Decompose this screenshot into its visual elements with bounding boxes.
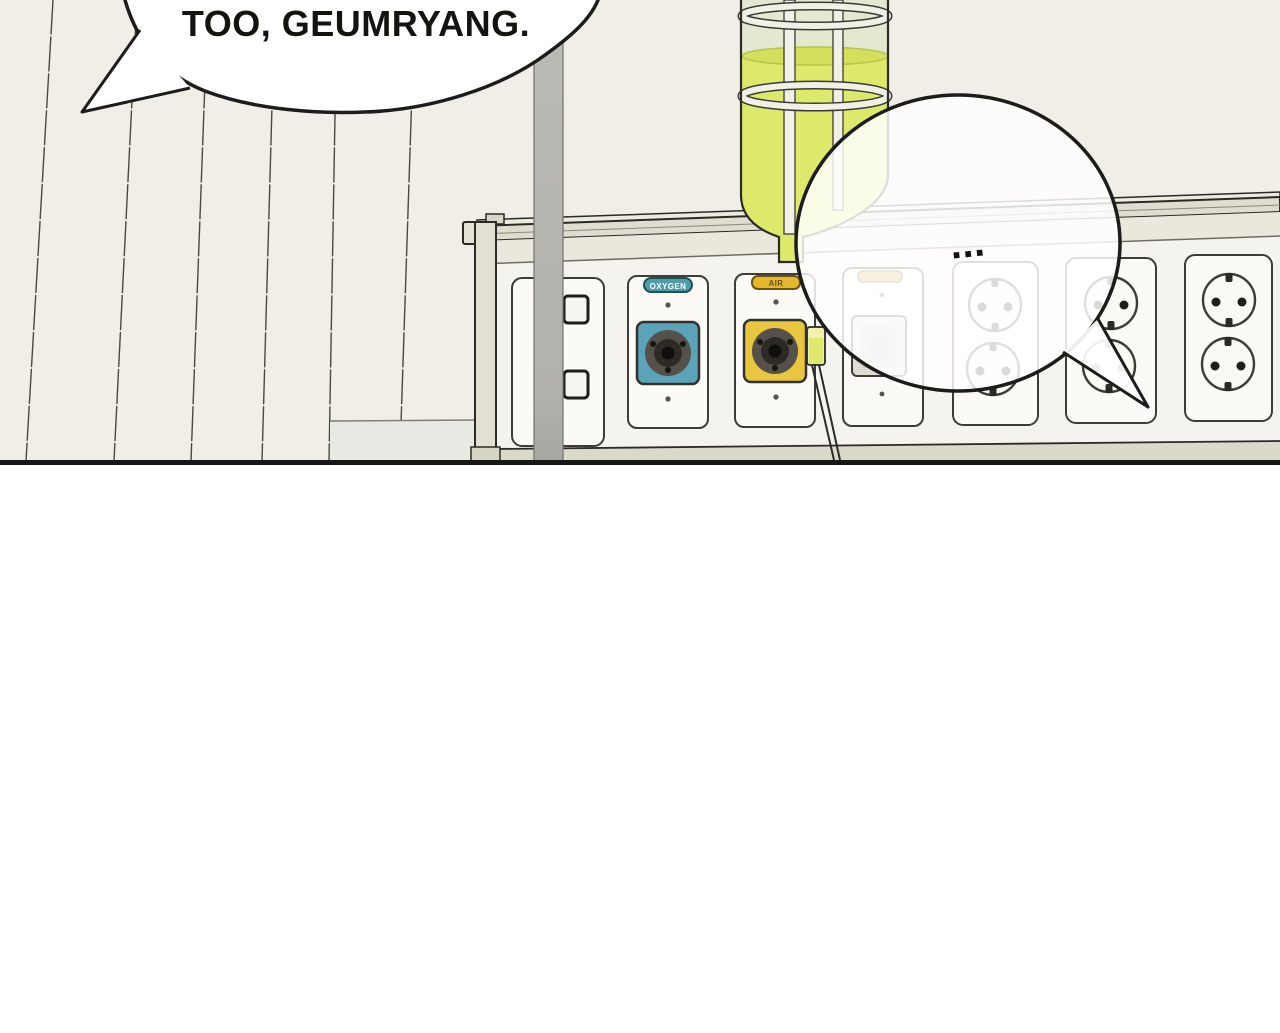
connector-slot: [564, 371, 588, 398]
screw: [880, 392, 885, 397]
gas-outlet-oxygen: OXYGEN: [628, 276, 708, 428]
console-left-foot: [471, 447, 500, 461]
air-socket: [744, 320, 806, 382]
console-left-post: [475, 222, 496, 461]
socket-bolt: [772, 365, 778, 371]
socket-bolt: [665, 367, 671, 373]
screw: [773, 299, 778, 304]
bottle-strap: [784, 0, 795, 234]
power-socket: [1203, 273, 1255, 327]
lower-wall-edge: [330, 420, 478, 421]
screw: [665, 396, 670, 401]
drip-chamber-top: [807, 327, 825, 339]
gas-outlet-air: AIR: [735, 274, 815, 427]
socket-bolt: [680, 341, 686, 347]
screw: [665, 302, 670, 307]
connector-slot: [564, 296, 588, 323]
liquid-surface: [742, 47, 888, 65]
lower-wall-face: [330, 421, 478, 462]
socket-bore: [662, 347, 675, 360]
power-outlet-panel: [1185, 255, 1272, 421]
iv-drip-chamber: [809, 338, 824, 364]
lower-wall: [330, 420, 478, 462]
socket-bolt: [650, 341, 656, 347]
iv-pole: [534, 0, 563, 461]
hospital-room-scene: OXYGEN AIR: [0, 0, 1280, 1033]
socket-bolt: [787, 339, 793, 345]
oxygen-socket: [637, 322, 699, 384]
comic-panel: OXYGEN AIR: [0, 0, 1280, 1033]
dialogue-text: TOO, GEUMRYANG.: [182, 3, 530, 44]
socket-bolt: [757, 339, 763, 345]
power-socket: [1202, 337, 1254, 391]
socket-bore: [769, 345, 782, 358]
webtoon-gutter: [0, 465, 1280, 1033]
panel-border-line: [0, 460, 1280, 465]
air-label: AIR: [769, 279, 784, 288]
screw: [773, 394, 778, 399]
ellipsis-text: ...: [948, 220, 987, 267]
oxygen-label: OXYGEN: [650, 282, 687, 291]
